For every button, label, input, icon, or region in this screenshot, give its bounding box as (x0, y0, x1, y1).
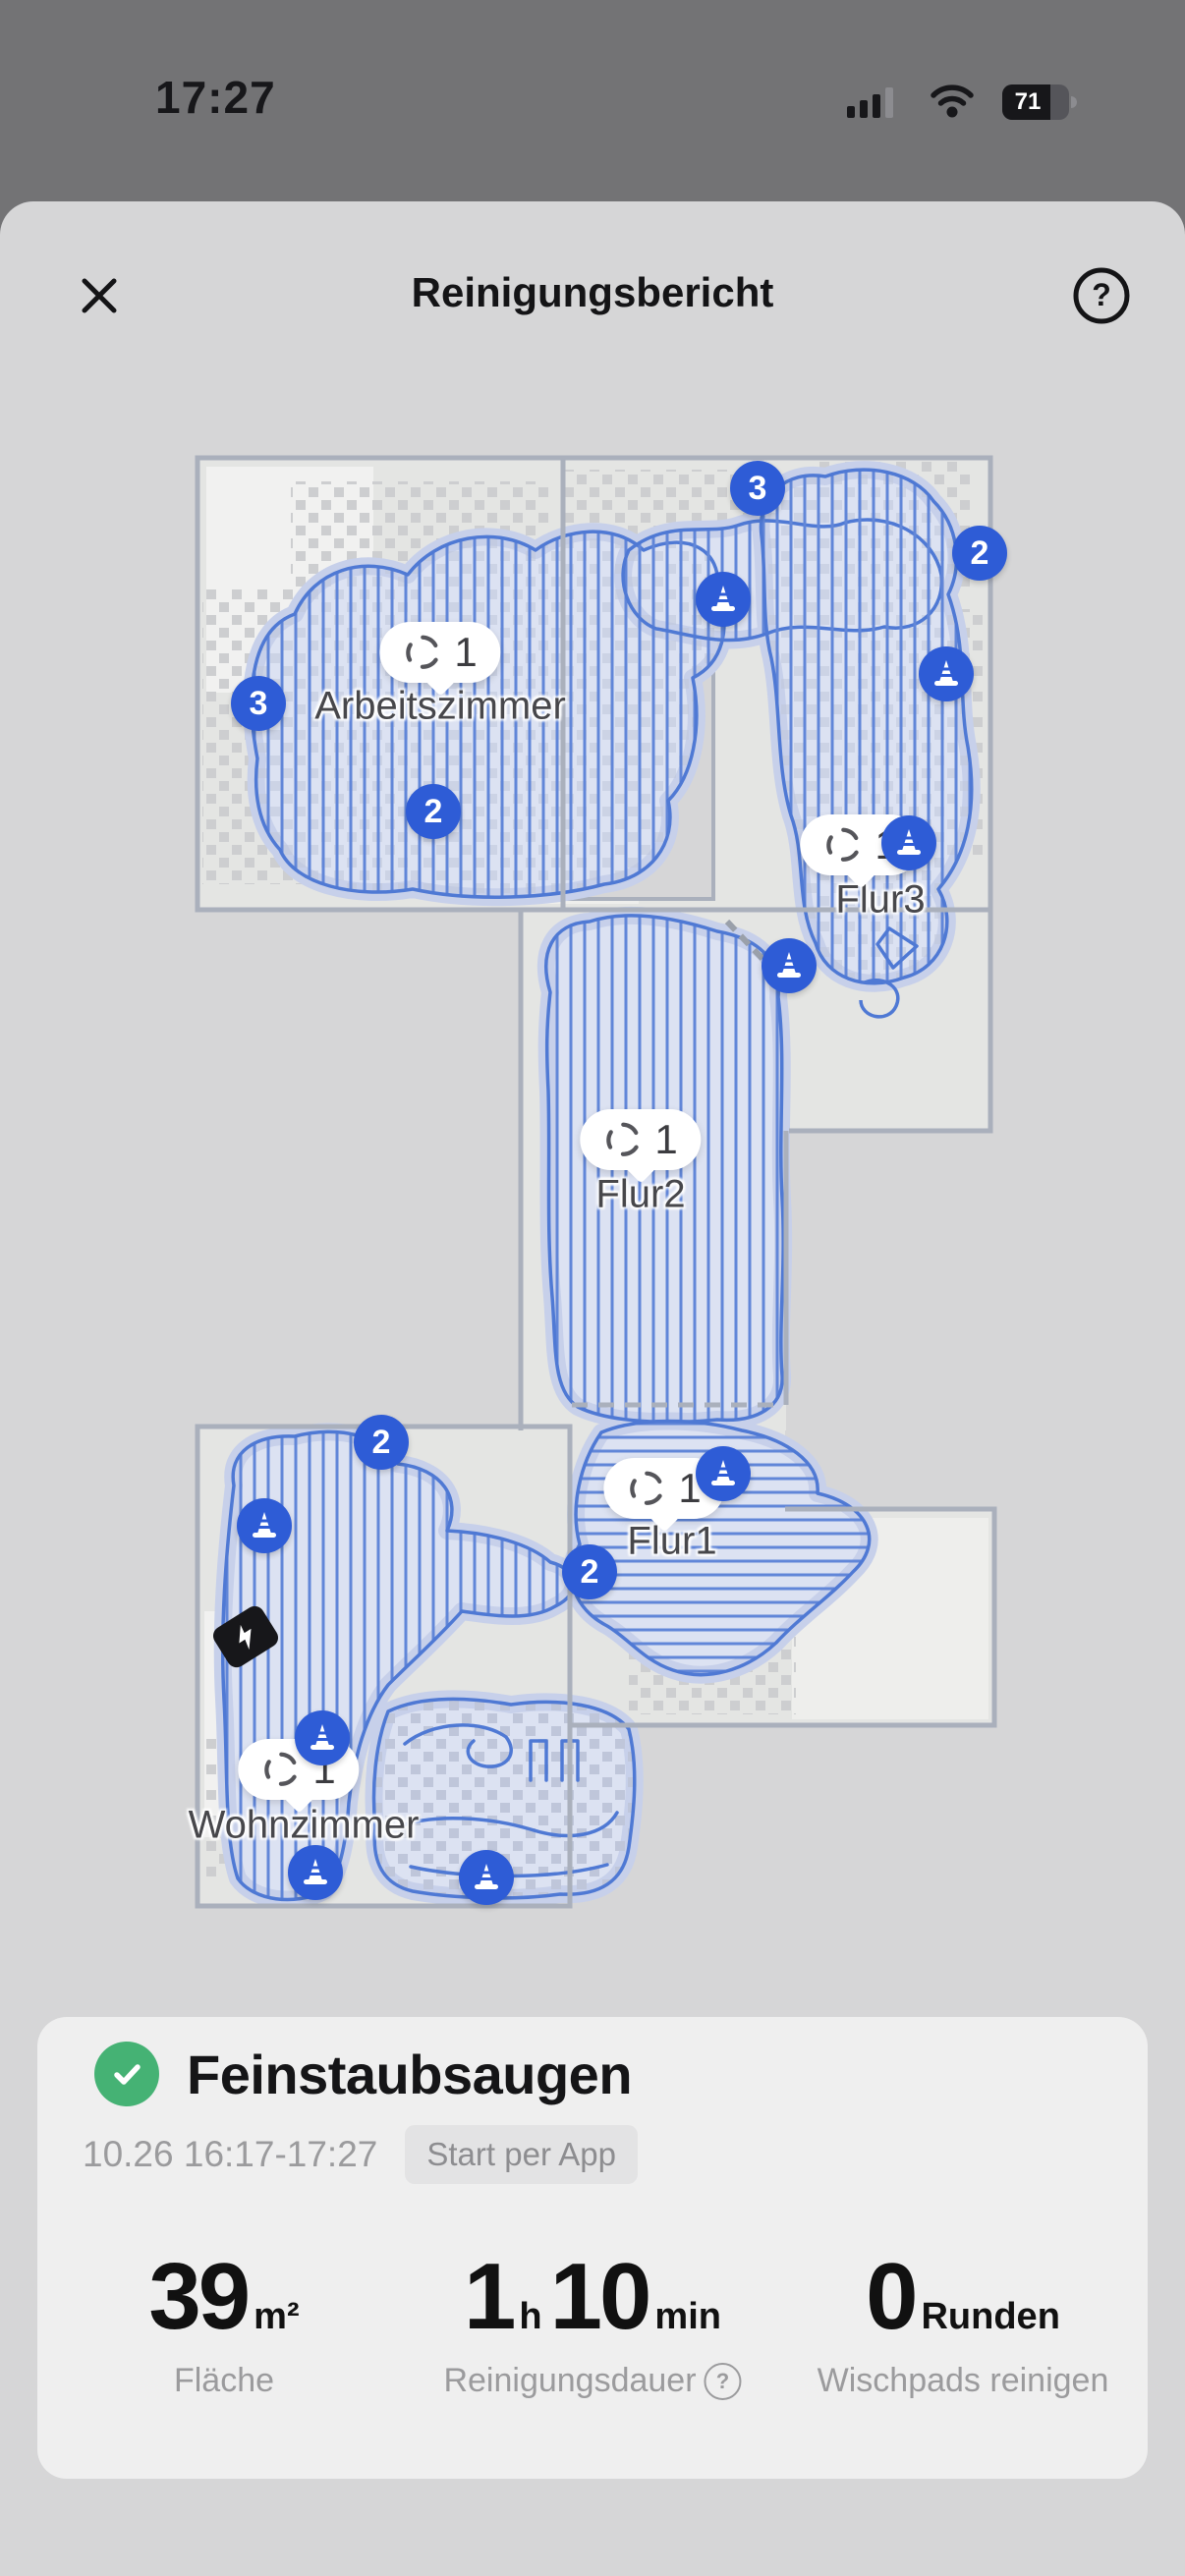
stat-label: Fläche (148, 2362, 299, 2400)
badge-number: 2 (971, 534, 989, 573)
fan-icon (823, 825, 863, 865)
obstacle-cone-icon[interactable] (288, 1845, 343, 1900)
stat-value2: 10 (550, 2250, 649, 2344)
clean-count: 1 (454, 629, 477, 676)
badge-number: 2 (372, 1424, 391, 1462)
summary-sub-row: 10.26 16:17-17:27 Start per App (83, 2125, 638, 2184)
obstacle-cone-icon[interactable] (881, 815, 936, 870)
obstacle-cone-icon[interactable] (919, 646, 974, 701)
stat-mop-rounds: 0 Runden Wischpads reinigen (818, 2250, 1109, 2400)
map-badge[interactable]: 3 (730, 461, 785, 516)
room-label: Wohnzimmer (189, 1804, 420, 1848)
map-badge[interactable]: 3 (231, 676, 286, 731)
obstacle-cone-icon[interactable] (696, 1446, 751, 1501)
trigger-badge: Start per App (405, 2125, 638, 2184)
obstacle-cone-icon[interactable] (295, 1710, 350, 1765)
stat-label: Wischpads reinigen (818, 2362, 1109, 2400)
success-check-icon (94, 2042, 159, 2106)
map-badge[interactable]: 2 (354, 1415, 409, 1470)
map-badge[interactable]: 2 (562, 1544, 617, 1599)
duration-info-icon[interactable]: ? (705, 2363, 742, 2400)
stat-unit: Runden (921, 2296, 1059, 2338)
room-clean-count-pill[interactable]: 1 (379, 622, 500, 683)
task-datetime: 10.26 16:17-17:27 (83, 2134, 377, 2175)
obstacle-cone-icon[interactable] (696, 572, 751, 627)
room-label: Flur1 (627, 1520, 716, 1564)
task-title: Feinstaubsaugen (187, 2043, 632, 2106)
stat-value: 1 (464, 2250, 513, 2344)
map-badge[interactable]: 2 (952, 526, 1007, 581)
badge-number: 3 (250, 685, 268, 723)
badge-number: 2 (581, 1553, 599, 1592)
stat-duration: 1 h 10 min Reinigungsdauer ? (443, 2250, 741, 2400)
stat-value: 0 (866, 2250, 915, 2344)
stat-unit: m² (254, 2296, 299, 2338)
obstacle-cone-icon[interactable] (237, 1498, 292, 1553)
badge-number: 3 (749, 470, 767, 508)
cleaning-map[interactable] (0, 0, 1185, 2004)
stat-value: 39 (148, 2250, 248, 2344)
fan-icon (603, 1120, 643, 1159)
clean-count: 1 (654, 1116, 677, 1163)
fan-icon (403, 633, 442, 672)
obstacle-cone-icon[interactable] (459, 1850, 514, 1905)
room-clean-count-pill[interactable]: 1 (580, 1109, 701, 1170)
stat-unit: h (519, 2296, 541, 2338)
fan-icon (627, 1469, 666, 1508)
stat-unit2: min (654, 2296, 721, 2338)
stat-label: Reinigungsdauer (443, 2362, 696, 2400)
summary-title-row: Feinstaubsaugen (94, 2042, 632, 2106)
room-label: Flur3 (835, 878, 925, 923)
badge-number: 2 (424, 793, 443, 831)
obstacle-cone-icon[interactable] (762, 938, 817, 993)
fan-icon (261, 1750, 301, 1789)
stat-area: 39 m² Fläche (148, 2250, 299, 2400)
map-badge[interactable]: 2 (406, 784, 461, 839)
